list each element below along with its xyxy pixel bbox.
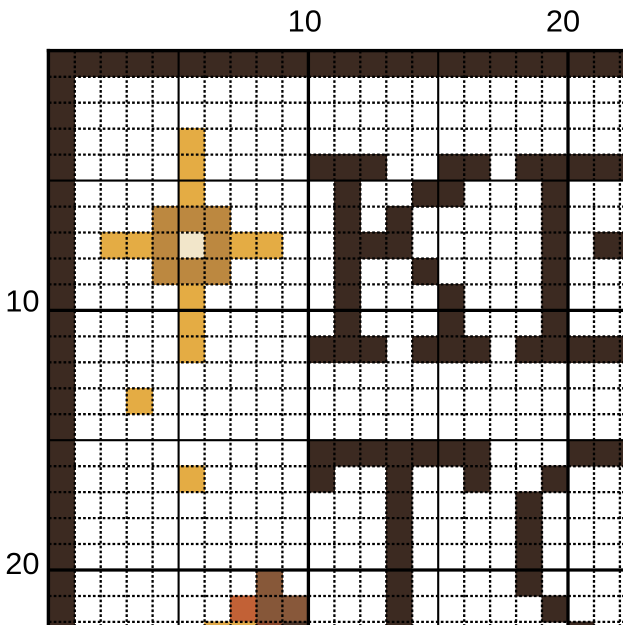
svg-text:20: 20 — [546, 3, 580, 38]
svg-text:20: 20 — [5, 546, 39, 581]
svg-text:10: 10 — [5, 284, 39, 319]
svg-text:10: 10 — [288, 3, 322, 38]
